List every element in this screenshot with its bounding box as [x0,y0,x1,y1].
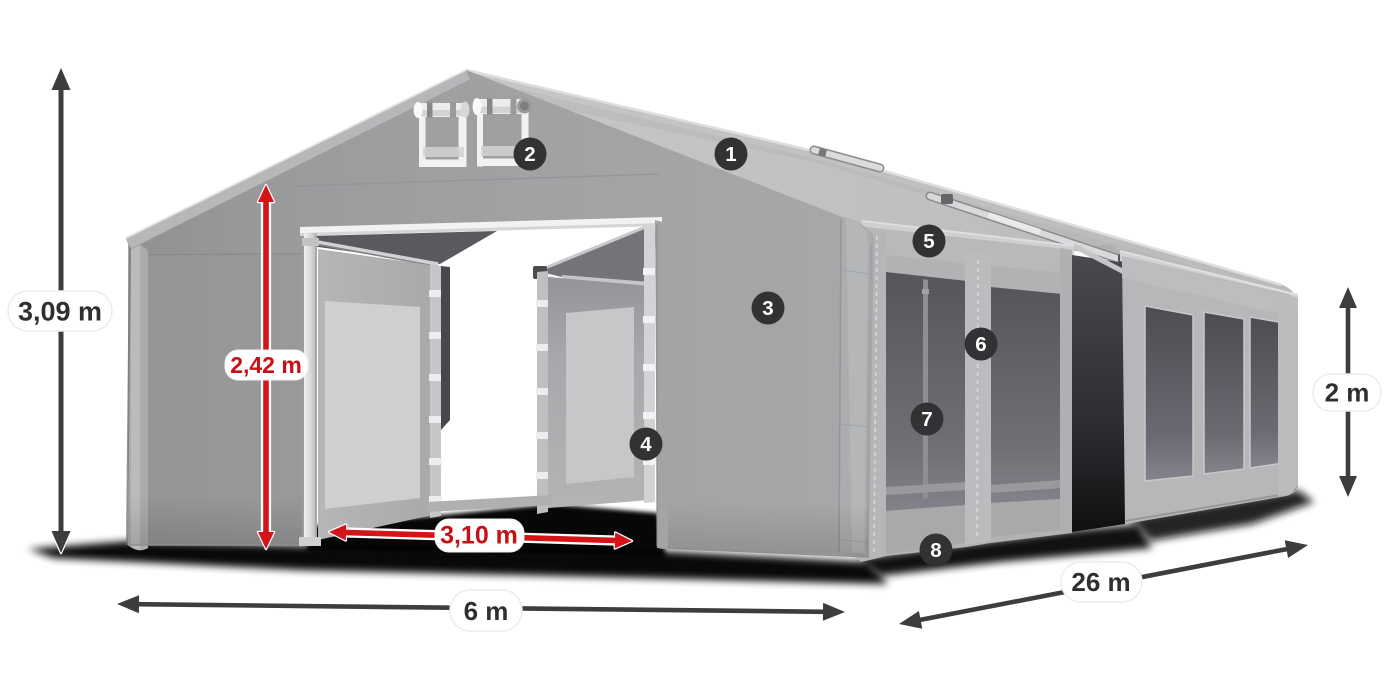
svg-text:6: 6 [975,333,986,356]
svg-text:4: 4 [640,433,652,456]
svg-text:3,10 m: 3,10 m [440,522,518,550]
svg-text:2 m: 2 m [1325,378,1370,408]
svg-text:2,42 m: 2,42 m [230,352,302,378]
svg-text:2: 2 [524,143,535,166]
svg-text:7: 7 [921,408,932,431]
svg-text:5: 5 [923,230,934,253]
svg-text:3: 3 [762,297,773,320]
svg-text:26 m: 26 m [1071,567,1130,597]
svg-text:1: 1 [725,143,736,166]
svg-text:3,09 m: 3,09 m [18,297,102,327]
svg-text:8: 8 [930,539,941,562]
svg-text:6 m: 6 m [464,596,509,626]
